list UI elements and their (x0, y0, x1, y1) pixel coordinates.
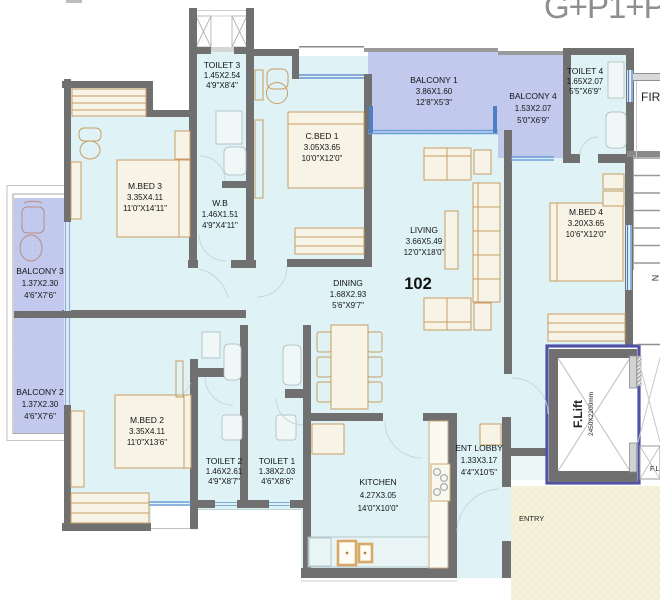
svg-text:TOILET 3: TOILET 3 (204, 60, 241, 70)
svg-text:M.BED 4: M.BED 4 (569, 207, 603, 217)
svg-text:C.BED 1: C.BED 1 (305, 131, 338, 141)
svg-text:1.53X2.07: 1.53X2.07 (515, 104, 552, 113)
svg-text:1.45X2.54: 1.45X2.54 (204, 71, 241, 80)
svg-text:4'6"X7'6": 4'6"X7'6" (24, 291, 56, 300)
svg-text:BALCONY 3: BALCONY 3 (16, 266, 64, 276)
svg-text:BALCONY 4: BALCONY 4 (509, 91, 557, 101)
svg-text:M.BED 3: M.BED 3 (128, 181, 162, 191)
svg-text:3.35X4.11: 3.35X4.11 (127, 193, 163, 202)
svg-text:14'0"X10'0": 14'0"X10'0" (358, 504, 399, 513)
svg-text:4'6"X7'6": 4'6"X7'6" (24, 412, 56, 421)
svg-text:4.27X3.05: 4.27X3.05 (360, 491, 397, 500)
svg-text:102: 102 (404, 275, 432, 293)
svg-text:1.37X2.30: 1.37X2.30 (22, 400, 59, 409)
svg-text:BALCONY 2: BALCONY 2 (16, 387, 64, 397)
svg-text:5'5"X6'9": 5'5"X6'9" (569, 87, 601, 96)
svg-text:TOILET 2: TOILET 2 (206, 456, 243, 466)
svg-text:4'6"X8'6": 4'6"X8'6" (261, 477, 293, 486)
svg-text:4'4"X10'5": 4'4"X10'5" (461, 468, 497, 477)
svg-text:10'0"X12'0": 10'0"X12'0" (302, 154, 343, 163)
svg-text:TOILET 1: TOILET 1 (259, 456, 296, 466)
svg-text:ENT LOBBY: ENT LOBBY (455, 443, 503, 453)
svg-text:3.05X3.65: 3.05X3.65 (304, 143, 341, 152)
svg-text:BALCONY 1: BALCONY 1 (410, 75, 458, 85)
svg-text:N: N (650, 275, 660, 282)
svg-text:1.37X2.30: 1.37X2.30 (22, 279, 59, 288)
svg-text:DINING: DINING (333, 278, 363, 288)
svg-text:4'9"X8'7": 4'9"X8'7" (208, 477, 240, 486)
svg-text:1.46X1.51: 1.46X1.51 (202, 210, 239, 219)
svg-text:2450X2200mm: 2450X2200mm (588, 392, 595, 436)
svg-text:KITCHEN: KITCHEN (359, 477, 396, 487)
svg-text:M.BED 2: M.BED 2 (130, 415, 164, 425)
svg-text:F.L: F.L (650, 466, 659, 473)
svg-text:1.65X2.07: 1.65X2.07 (567, 77, 604, 86)
svg-text:LIVING: LIVING (410, 225, 438, 235)
svg-text:ENTRY: ENTRY (519, 514, 544, 523)
svg-text:1.68X2.93: 1.68X2.93 (330, 290, 367, 299)
svg-text:G+P1+P2: G+P1+P2 (544, 0, 660, 25)
svg-text:5'6"X9'7": 5'6"X9'7" (332, 301, 364, 310)
svg-text:12'0"X18'0": 12'0"X18'0" (404, 248, 445, 257)
svg-text:10'6"X12'0": 10'6"X12'0" (566, 230, 607, 239)
svg-text:11'0"X14'11": 11'0"X14'11" (123, 204, 167, 213)
svg-text:F.Lift: F.Lift (571, 400, 585, 428)
svg-text:3.86X1.60: 3.86X1.60 (416, 87, 453, 96)
svg-text:3.35X4.11: 3.35X4.11 (129, 427, 165, 436)
svg-text:4'9"X8'4": 4'9"X8'4" (206, 81, 238, 90)
svg-text:1.46X2.61: 1.46X2.61 (206, 467, 243, 476)
svg-text:TOILET 4: TOILET 4 (567, 66, 604, 76)
svg-text:W.B: W.B (212, 198, 228, 208)
svg-text:FIRE: FIRE (641, 90, 660, 104)
svg-text:5'0"X6'9": 5'0"X6'9" (517, 116, 549, 125)
svg-text:1.33X3.17: 1.33X3.17 (461, 456, 498, 465)
svg-text:11'0"X13'6": 11'0"X13'6" (127, 438, 167, 447)
svg-text:4'9"X4'11": 4'9"X4'11" (202, 221, 238, 230)
svg-text:12'8"X5'3": 12'8"X5'3" (416, 98, 452, 107)
svg-text:3.20X3.65: 3.20X3.65 (568, 219, 605, 228)
svg-text:3.66X5.49: 3.66X5.49 (406, 237, 443, 246)
svg-text:1.38X2.03: 1.38X2.03 (259, 467, 296, 476)
